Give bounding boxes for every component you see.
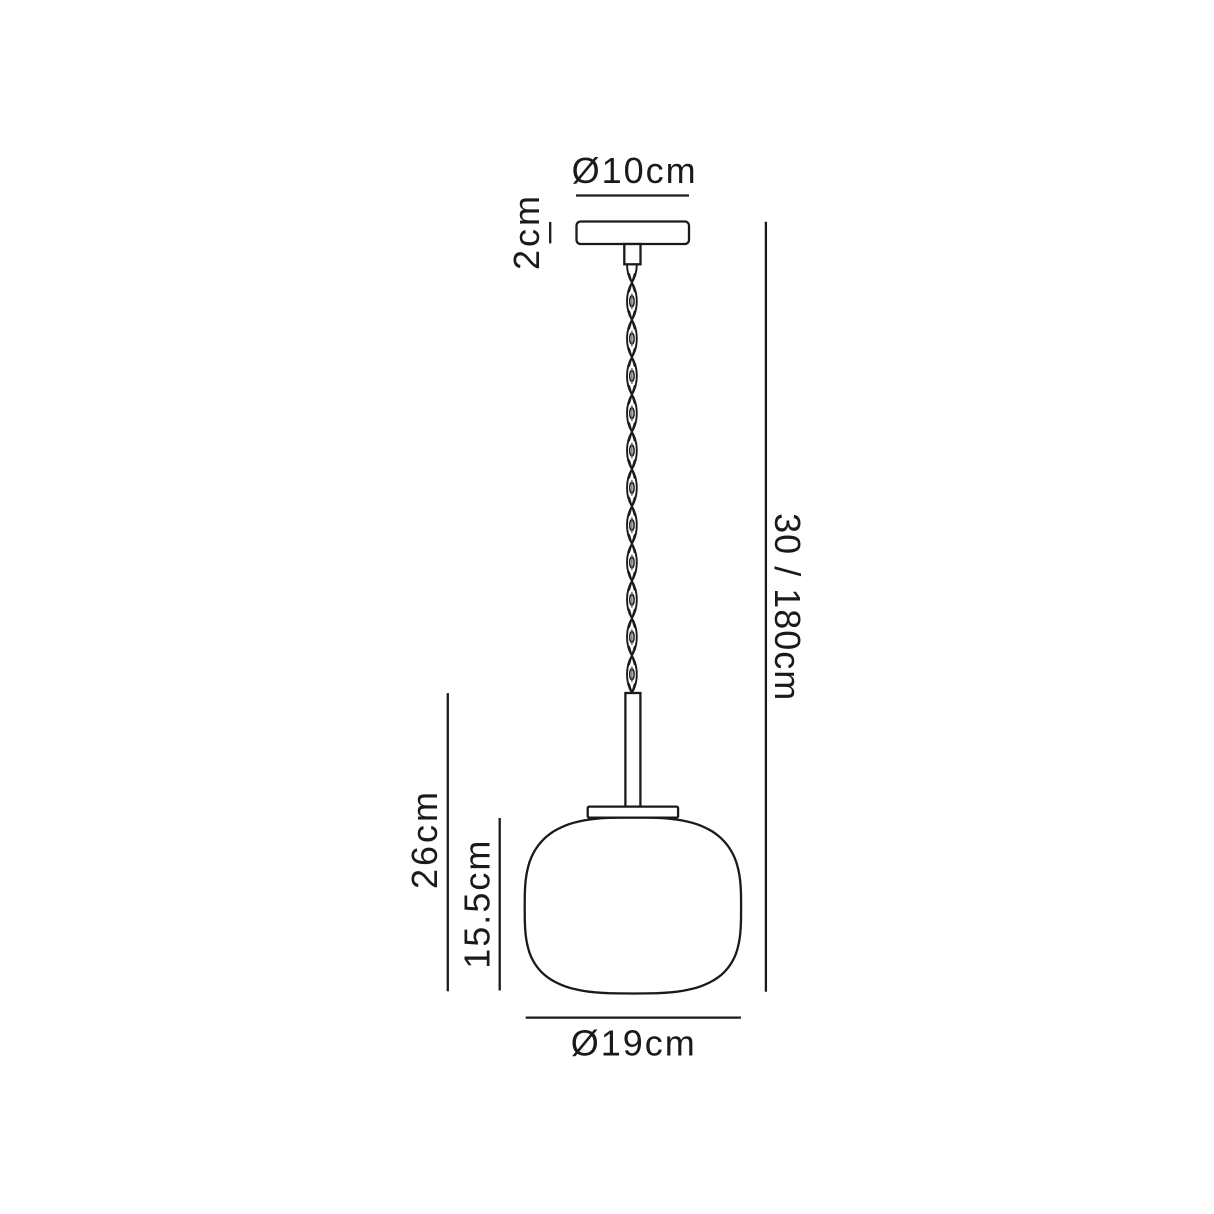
- svg-text:2cm: 2cm: [506, 193, 547, 270]
- svg-text:26cm: 26cm: [404, 789, 445, 889]
- svg-text:30 / 180cm: 30 / 180cm: [767, 513, 808, 701]
- svg-text:15.5cm: 15.5cm: [457, 839, 498, 969]
- svg-text:Ø19cm: Ø19cm: [571, 1023, 697, 1064]
- svg-text:Ø10cm: Ø10cm: [572, 150, 698, 191]
